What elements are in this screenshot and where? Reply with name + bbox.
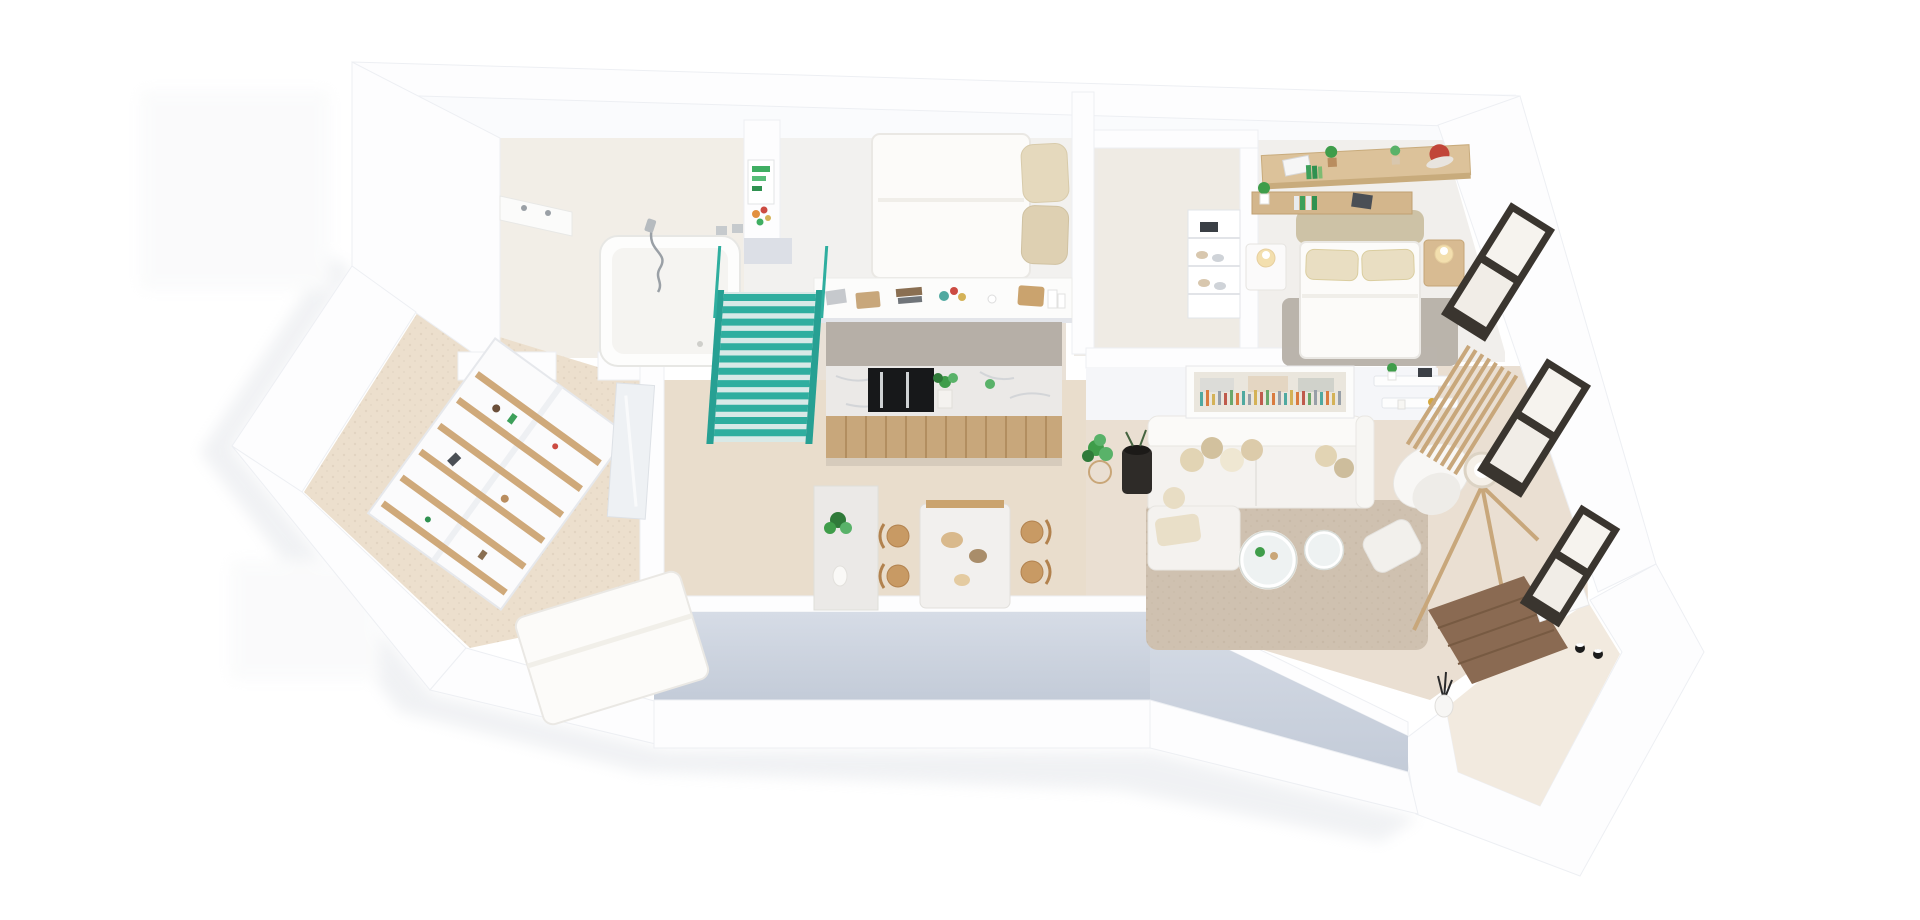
green-art-stroke-3 [752,186,762,191]
chair-3 [1021,521,1043,543]
stand-plant-leaf-4 [1094,434,1106,446]
green-art-stroke-2 [752,176,766,181]
faucet-left [521,205,527,211]
sofa-pillow-6 [1315,445,1337,467]
bedroom-2-pillow-right [1361,249,1414,281]
chair-4 [1021,561,1043,583]
counter-sculpture-2 [1058,294,1065,308]
table-bowl-1 [941,532,963,548]
table-bowl-3 [954,574,970,586]
built-in-appliance [868,368,934,412]
shelf-tablet [1351,193,1373,210]
counter-toy-teal [939,291,949,301]
abstract-wall-art [1186,366,1354,418]
counter-wood-box [855,291,880,309]
sofa-pillow-7 [1334,458,1354,478]
bathtub-drain [697,341,703,347]
coffee-table-large [1241,533,1295,587]
console-plant-leaf-3 [840,522,852,534]
marble-console [814,486,878,610]
south-wall-face [654,612,1152,700]
kitchen-niche [826,322,1062,366]
chair-2 [887,565,909,587]
bedroom-1-bed [872,134,1030,278]
stand-plant-leaf-2 [1099,447,1113,461]
appliance-handle-2 [906,372,909,408]
coffee-table-small [1306,532,1342,568]
bed-pillow-bottom [1021,205,1069,265]
desk-plant-pot-2 [1392,156,1400,164]
coffee-table-decor-bowl [1270,552,1278,560]
shoe-2 [1212,254,1224,262]
counter-toy-yellow [958,293,966,301]
shoe-4 [1214,282,1226,290]
kitchen-plant-leaf-2 [948,373,958,383]
counter-gray-box [825,289,847,306]
south-wall-outer [654,700,1152,748]
stand-plant-leaf-3 [1082,450,1094,462]
kitchen-plant-leaf-3 [933,373,943,383]
floor-plan-render [0,0,1920,920]
sofa-pillow-5 [1163,487,1185,509]
shelf-flower-red [761,207,768,214]
bedroom-2-headboard [1296,210,1424,244]
striped-book-1 [1294,196,1299,210]
lamp-highlight-left [1262,251,1270,259]
bedroom-2-duvet-fold [1302,294,1418,298]
console-plant-leaf-2 [824,522,836,534]
shelf-vase [1398,400,1405,409]
shelf-plant-pot-top [1388,372,1396,380]
counter-sculpture-1 [1048,290,1057,308]
shower-control-right [732,224,743,233]
coffee-table-decor-plant [1255,547,1265,557]
closet-dark-books [1200,222,1218,232]
counter-mug [988,295,996,303]
counter-toy-red [950,287,958,295]
kitchen-plant-pot [938,390,952,408]
sofa-pillow-3 [1220,448,1244,472]
striped-book-4 [1312,196,1317,210]
duvet-fold [878,198,1024,202]
chair-1 [887,525,909,547]
bedroom-1-east-wall [1072,92,1094,354]
wall-shelf-upper [1374,376,1450,386]
closet-north-wall [1094,130,1258,148]
kitchen [826,322,1062,466]
shelf-books-dark [1418,368,1432,377]
console-vase [833,566,847,586]
striped-book-3 [1306,196,1311,210]
kitchen-plant-2 [985,379,995,389]
sofa-pillow-2 [1201,437,1223,459]
shelf-flower-orange [752,210,760,218]
striped-book-2 [1300,196,1305,210]
green-book-1 [1306,165,1312,179]
cabinet-shadow [826,458,1062,466]
floor-plan-canvas [0,0,1920,920]
green-book-3 [1318,166,1323,178]
shoe-1 [1196,251,1208,259]
dining-table [920,504,1010,608]
shower-control-left [716,226,727,235]
lower-wall-shelf [1252,192,1412,214]
bed-pillow-top [1021,143,1070,203]
shelf-flower-green [757,219,764,226]
shelf-plant [1258,182,1270,194]
shelf-flower-yellow [765,215,771,221]
appliance-handle-1 [880,372,883,408]
dining-table-wood-trim [926,500,1004,508]
green-book-2 [1312,166,1318,179]
hall-closet [1188,210,1240,318]
faucet-right [545,210,551,216]
counter-basket [1017,285,1044,307]
shelf-plant-pot [1260,194,1269,204]
south-wall-lip [654,596,1152,612]
black-planter-top [1124,445,1150,455]
desk-plant-pot-1 [1328,158,1337,167]
sofa-armrest [1356,416,1374,508]
shoe-3 [1198,279,1210,287]
sofa-pillow-1 [1180,448,1204,472]
column-base-shelf [744,238,792,264]
sofa-pillow-4 [1241,439,1263,461]
lamp-highlight-right [1440,247,1448,255]
green-art-stroke-1 [752,166,770,172]
table-bowl-2 [969,549,987,563]
bedroom-2-pillow-left [1305,249,1358,281]
bathtub-basin [612,248,728,354]
